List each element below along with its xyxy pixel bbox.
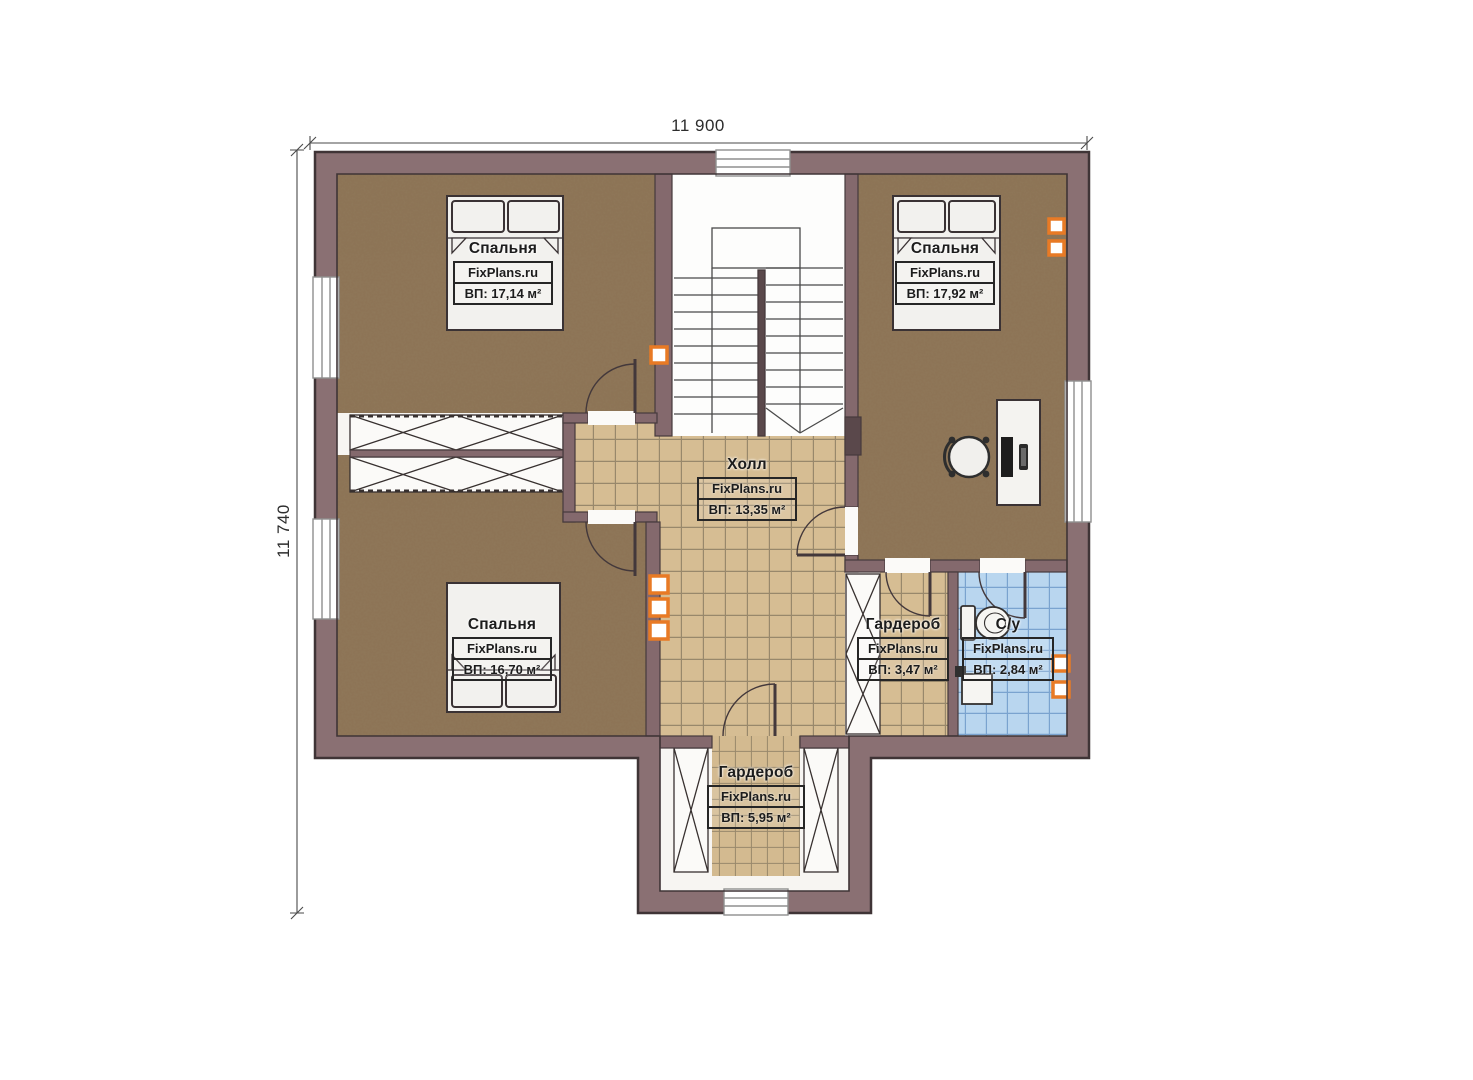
stair-divider-wall — [758, 270, 765, 436]
wall — [350, 450, 563, 457]
room-label-box: FixPlans.ru ВП: 16,70 м² — [452, 637, 552, 681]
room-area-value: ВП: 13,35 м² — [699, 498, 795, 519]
radiator-icon — [650, 599, 668, 616]
dimension-left-label: 11 740 — [274, 486, 294, 576]
room-area-value: ВП: 2,84 м² — [964, 658, 1052, 679]
room-name: Спальня — [422, 616, 582, 634]
door-opening — [845, 507, 858, 555]
room-area-value: ВП: 5,95 м² — [709, 806, 803, 827]
room-label-bathroom: С/у FixPlans.ru ВП: 2,84 м² — [928, 616, 1088, 681]
dimension-top-label: 11 900 — [653, 116, 743, 136]
door-opening — [588, 411, 635, 425]
floor-plan-drawing — [0, 0, 1473, 1080]
room-name: Спальня — [423, 240, 583, 258]
wall — [563, 512, 588, 522]
watermark-fixplans: FixPlans.ru — [454, 639, 550, 658]
window-left-upper — [313, 277, 339, 378]
room-label-bedroom-top-left: Спальня FixPlans.ru ВП: 17,14 м² — [423, 240, 583, 305]
room-name: Гардероб — [676, 764, 836, 782]
floor-plan: 11 900 11 740 Спальня FixPlans.ru ВП: 17… — [0, 0, 1473, 1080]
window-left-lower — [313, 519, 339, 619]
wall — [845, 560, 885, 572]
room-label-bedroom-top-right: Спальня FixPlans.ru ВП: 17,92 м² — [865, 240, 1025, 305]
monitor-icon — [1001, 437, 1013, 477]
radiator-icon — [650, 622, 668, 639]
radiator-icon — [650, 576, 668, 593]
wall-pier — [845, 417, 861, 455]
room-label-box: FixPlans.ru ВП: 17,92 м² — [895, 261, 995, 305]
door-opening — [885, 558, 930, 573]
dimension-line-top — [304, 136, 1093, 150]
watermark-fixplans: FixPlans.ru — [709, 787, 803, 806]
office-chair-icon — [944, 437, 989, 478]
room-area-value: ВП: 17,14 м² — [455, 282, 551, 303]
door-opening — [980, 558, 1025, 573]
room-label-box: FixPlans.ru ВП: 5,95 м² — [707, 785, 805, 829]
wall — [563, 413, 588, 423]
radiator-icon — [651, 347, 667, 363]
door-opening — [588, 510, 635, 524]
room-name: С/у — [928, 616, 1088, 634]
wall — [1025, 560, 1067, 572]
wall — [800, 736, 849, 748]
room-area-value: ВП: 17,92 м² — [897, 282, 993, 303]
wall — [635, 413, 657, 423]
watermark-fixplans: FixPlans.ru — [897, 263, 993, 282]
radiator-icon — [1049, 219, 1064, 233]
window-right — [1065, 381, 1091, 522]
room-label-box: FixPlans.ru ВП: 13,35 м² — [697, 477, 797, 521]
desk-icon — [997, 400, 1040, 505]
wall — [655, 174, 672, 436]
wall — [635, 512, 657, 522]
room-area-value: ВП: 16,70 м² — [454, 658, 550, 679]
wall — [930, 560, 980, 572]
wall — [563, 413, 575, 522]
room-label-hall: Холл FixPlans.ru ВП: 13,35 м² — [667, 456, 827, 521]
closet-strip-bottom — [350, 457, 563, 492]
room-label-box: FixPlans.ru ВП: 17,14 м² — [453, 261, 553, 305]
window-top — [716, 150, 790, 176]
closet-strip-top — [350, 415, 563, 450]
watermark-fixplans: FixPlans.ru — [699, 479, 795, 498]
room-label-box: FixPlans.ru ВП: 2,84 м² — [962, 637, 1054, 681]
window-bottom — [724, 889, 788, 915]
radiator-icon — [1049, 241, 1064, 255]
room-label-wardrobe-bottom: Гардероб FixPlans.ru ВП: 5,95 м² — [676, 764, 836, 829]
room-label-bedroom-bottom-left: Спальня FixPlans.ru ВП: 16,70 м² — [422, 616, 582, 681]
wall — [845, 174, 858, 507]
watermark-fixplans: FixPlans.ru — [964, 639, 1052, 658]
watermark-fixplans: FixPlans.ru — [455, 263, 551, 282]
room-name: Спальня — [865, 240, 1025, 258]
wall — [660, 736, 712, 748]
room-name: Холл — [667, 456, 827, 474]
